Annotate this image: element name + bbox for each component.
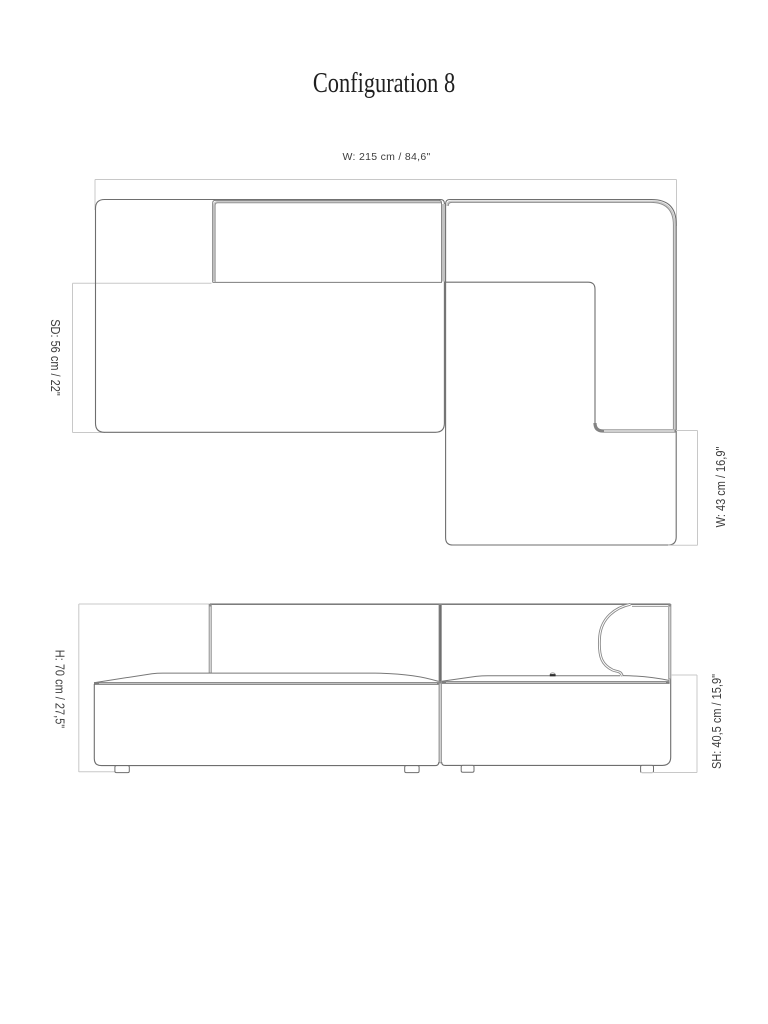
svg-text:SD: 56 cm / 22": SD: 56 cm / 22" [48, 319, 62, 396]
svg-text:W: 215 cm / 84,6": W: 215 cm / 84,6" [342, 151, 430, 163]
svg-text:W: 43 cm / 16,9": W: 43 cm / 16,9" [714, 447, 728, 528]
svg-text:H: 70 cm / 27,5": H: 70 cm / 27,5" [52, 650, 66, 728]
svg-text:Configuration 8: Configuration 8 [313, 66, 455, 98]
svg-text:SH: 40,5 cm / 15,9": SH: 40,5 cm / 15,9" [710, 674, 724, 769]
